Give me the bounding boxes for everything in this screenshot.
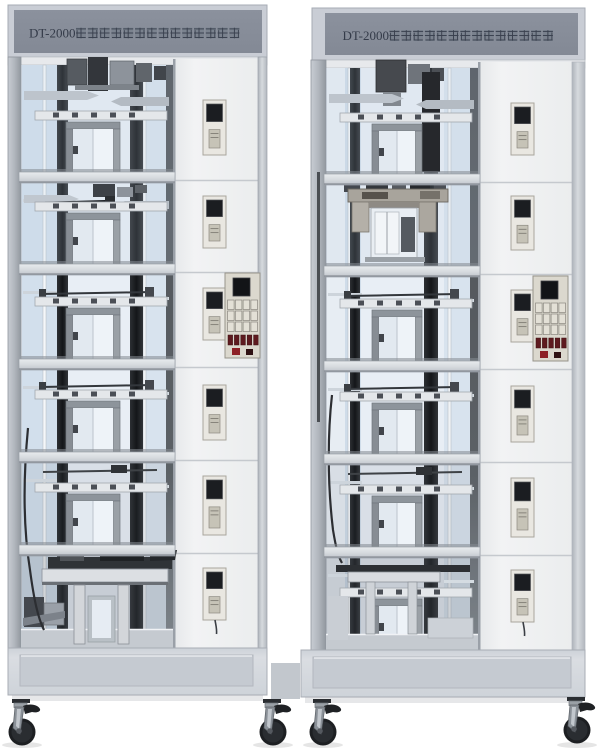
- svg-text:DT-2000: DT-2000: [29, 26, 75, 41]
- svg-text:DT-2000: DT-2000: [343, 28, 389, 43]
